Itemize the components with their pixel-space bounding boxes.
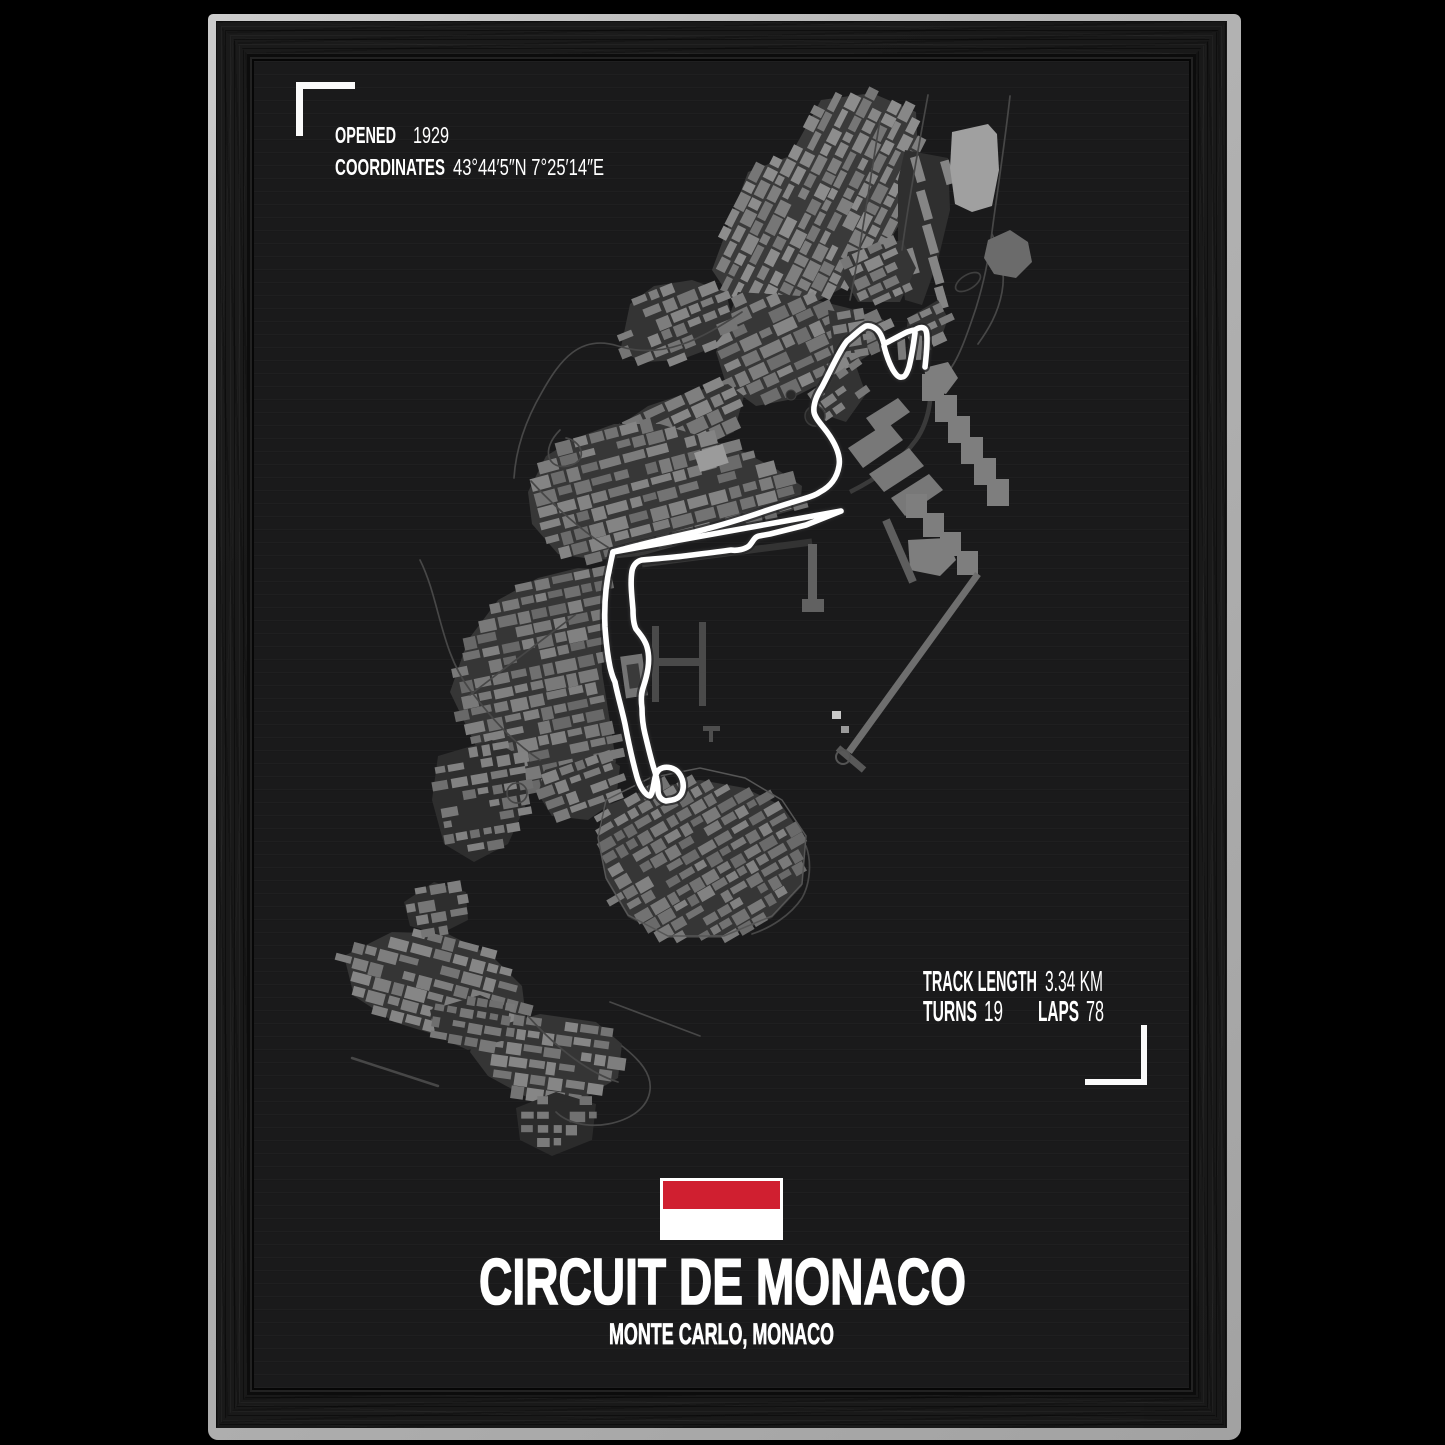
svg-text:1929: 1929 xyxy=(413,122,449,148)
svg-text:TRACK LENGTH: TRACK LENGTH xyxy=(923,966,1037,998)
svg-text:CIRCUIT DE MONACO: CIRCUIT DE MONACO xyxy=(479,1245,966,1318)
svg-text:OPENED: OPENED xyxy=(335,122,396,148)
svg-text:43°44′5″N 7°25′14″E: 43°44′5″N 7°25′14″E xyxy=(453,154,604,180)
svg-text:LAPS: LAPS xyxy=(1038,996,1079,1028)
svg-text:19: 19 xyxy=(984,996,1003,1028)
svg-text:78: 78 xyxy=(1086,996,1104,1028)
svg-text:COORDINATES: COORDINATES xyxy=(335,154,445,180)
svg-text:3.34 KM: 3.34 KM xyxy=(1045,966,1103,998)
svg-text:MONTE CARLO, MONACO: MONTE CARLO, MONACO xyxy=(609,1318,834,1351)
svg-text:TURNS: TURNS xyxy=(923,996,977,1028)
